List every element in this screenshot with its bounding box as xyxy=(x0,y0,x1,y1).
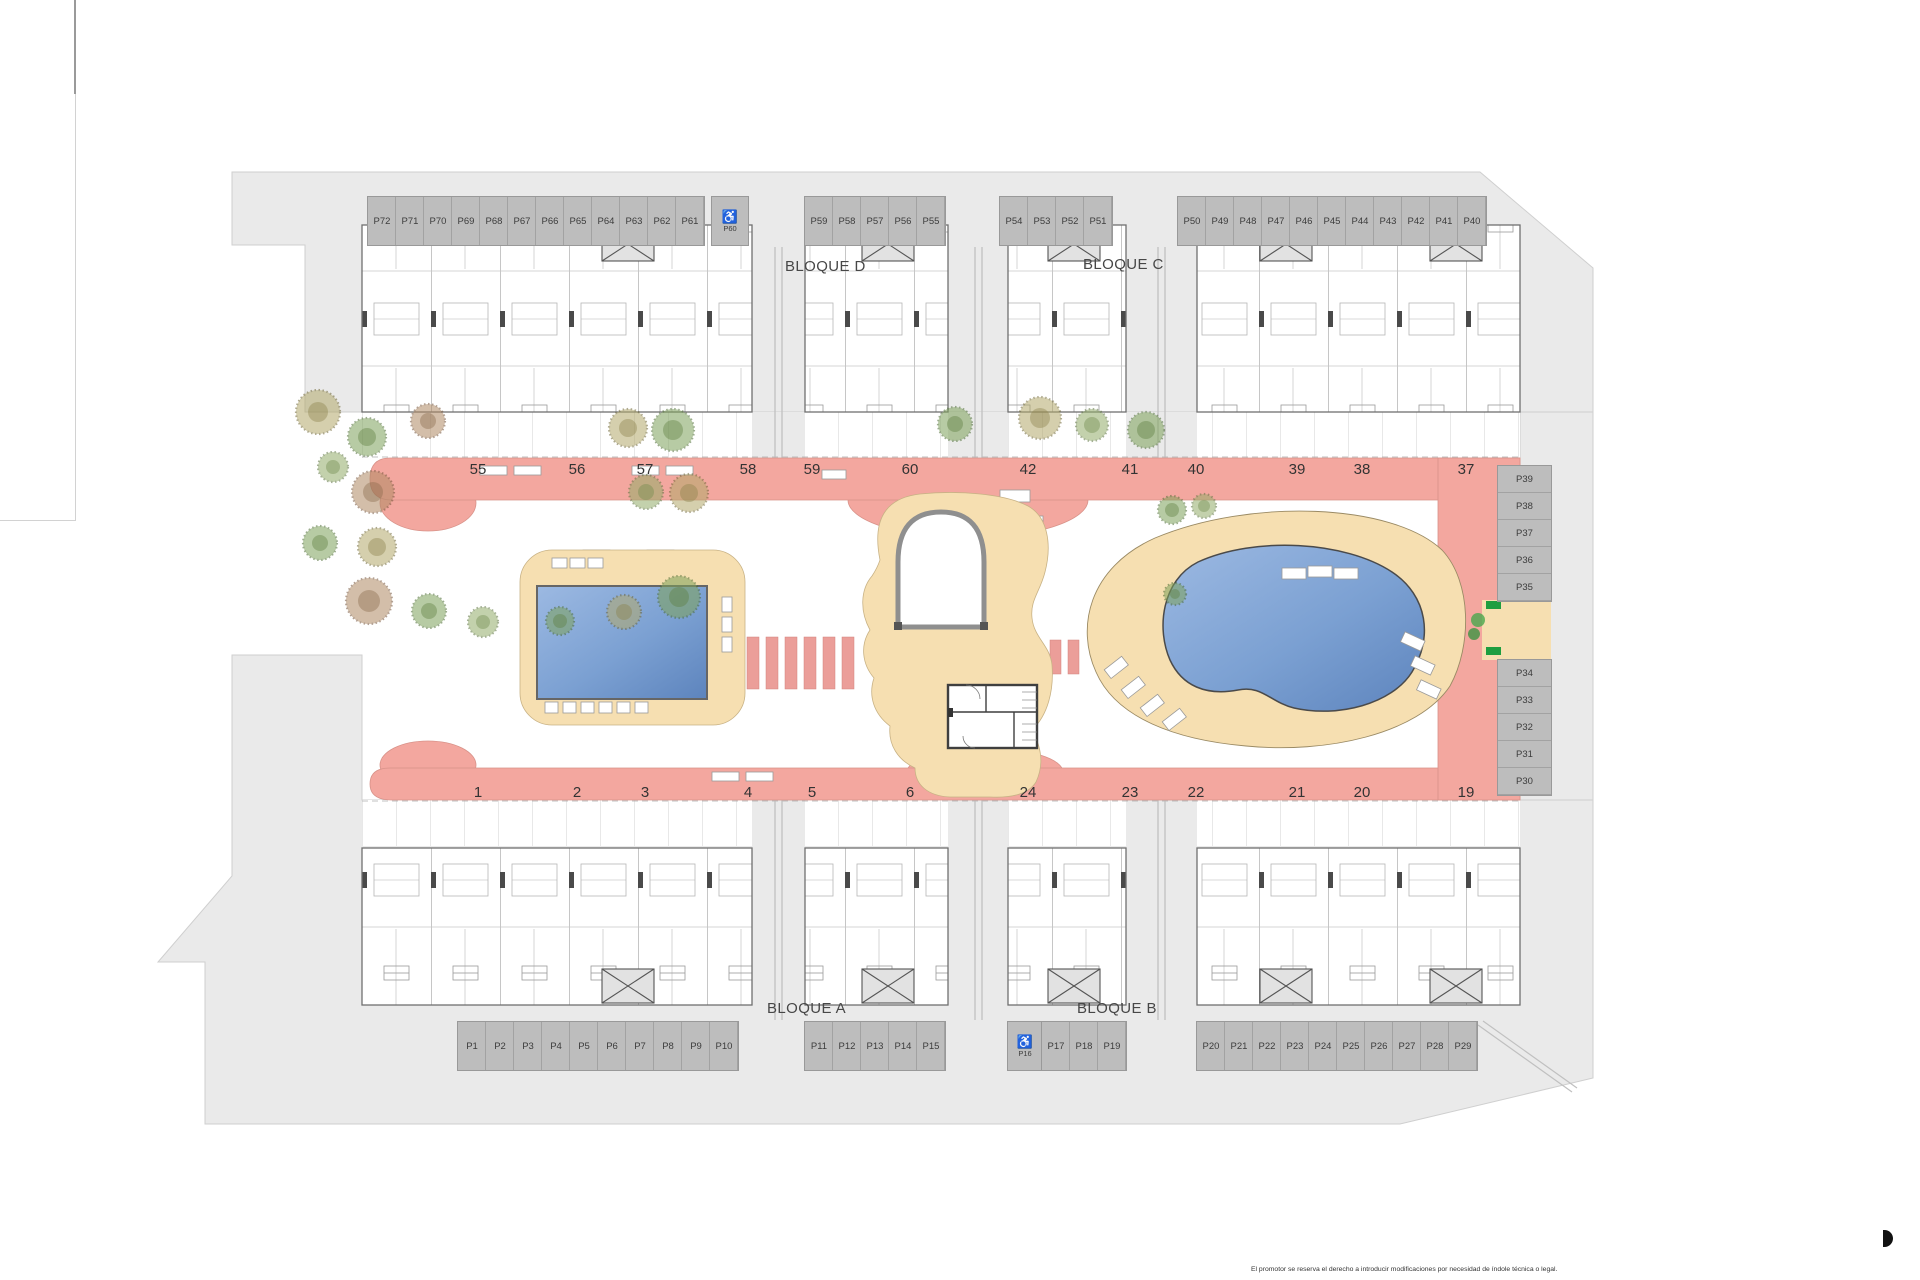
parking-stall: P14 xyxy=(889,1022,917,1070)
unit-number: 24 xyxy=(1020,784,1037,801)
wheelchair-icon: ♿ xyxy=(722,210,738,223)
parking-stall: P50 xyxy=(1178,197,1206,245)
parking-row-bottom-c: P17P18P19 xyxy=(1042,1022,1126,1070)
unit-number: 39 xyxy=(1289,461,1306,478)
parking-stall: P40 xyxy=(1458,197,1486,245)
pool-house xyxy=(948,685,1037,748)
parking-stall: P36 xyxy=(1498,547,1551,574)
parking-stall: P3 xyxy=(514,1022,542,1070)
parking-stall-accessible: ♿ P16 xyxy=(1008,1022,1042,1070)
central-amenity xyxy=(863,493,1053,798)
site-plan-canvas: P72P71P70P69P68P67P66P65P64P63P62P61 ♿ P… xyxy=(0,0,1920,1280)
parking-row-bottom-a: P1P2P3P4P5P6P7P8P9P10 xyxy=(458,1022,738,1070)
parking-stall: P47 xyxy=(1262,197,1290,245)
parking-stall: P23 xyxy=(1281,1022,1309,1070)
exit-sign-icon xyxy=(1486,601,1501,609)
unit-number: 23 xyxy=(1122,784,1139,801)
parking-stall: P48 xyxy=(1234,197,1262,245)
unit-number: 37 xyxy=(1458,461,1475,478)
parking-stall: P1 xyxy=(458,1022,486,1070)
parking-stall: P24 xyxy=(1309,1022,1337,1070)
parking-stall: P67 xyxy=(508,197,536,245)
parking-stall: P26 xyxy=(1365,1022,1393,1070)
parking-stall: P20 xyxy=(1197,1022,1225,1070)
wheelchair-icon: ♿ xyxy=(1017,1035,1033,1048)
left-pool-deck xyxy=(520,550,745,725)
block-label-a: BLOQUE A xyxy=(767,1000,846,1017)
parking-stall: P28 xyxy=(1421,1022,1449,1070)
parking-stall: P64 xyxy=(592,197,620,245)
parking-column-right-upper: P39P38P37P36P35 xyxy=(1498,466,1551,601)
parking-stall: P41 xyxy=(1430,197,1458,245)
parking-stall: P65 xyxy=(564,197,592,245)
parking-stall: P32 xyxy=(1498,714,1551,741)
parking-stall: P69 xyxy=(452,197,480,245)
kidney-pool-deck xyxy=(1087,511,1465,748)
block-label-d: BLOQUE D xyxy=(785,258,866,275)
parking-stall-accessible: ♿ P60 xyxy=(712,197,748,245)
parking-stall: P29 xyxy=(1449,1022,1477,1070)
unit-number: 20 xyxy=(1354,784,1371,801)
parking-stall: P31 xyxy=(1498,741,1551,768)
unit-number: 40 xyxy=(1188,461,1205,478)
parking-stall: P25 xyxy=(1337,1022,1365,1070)
parking-stall: P44 xyxy=(1346,197,1374,245)
parking-stall: P12 xyxy=(833,1022,861,1070)
parking-stall: P49 xyxy=(1206,197,1234,245)
parking-stall: P68 xyxy=(480,197,508,245)
parking-stall: P11 xyxy=(805,1022,833,1070)
parking-stall: P61 xyxy=(676,197,704,245)
unit-number: 19 xyxy=(1458,784,1475,801)
unit-numbers-top-right: 424140393837 xyxy=(0,461,1920,479)
disclaimer-text: El promotor se reserva el derecho a intr… xyxy=(1251,1266,1571,1273)
parking-stall: P42 xyxy=(1402,197,1430,245)
parking-stall: P4 xyxy=(542,1022,570,1070)
parking-stall: P21 xyxy=(1225,1022,1253,1070)
parking-stall: P18 xyxy=(1070,1022,1098,1070)
parking-stall: P9 xyxy=(682,1022,710,1070)
parking-stall: P35 xyxy=(1498,574,1551,601)
unit-number: 38 xyxy=(1354,461,1371,478)
parking-stall: P66 xyxy=(536,197,564,245)
parking-stall: P53 xyxy=(1028,197,1056,245)
parking-stall: P72 xyxy=(368,197,396,245)
block-label-b: BLOQUE B xyxy=(1077,1000,1157,1017)
unit-number: 42 xyxy=(1020,461,1037,478)
parking-row-bottom-d: P20P21P22P23P24P25P26P27P28P29 xyxy=(1197,1022,1477,1070)
parking-stall: P57 xyxy=(861,197,889,245)
parking-column-right-lower: P34P33P32P31P30 xyxy=(1498,660,1551,795)
parking-stall: P13 xyxy=(861,1022,889,1070)
parking-stall: P59 xyxy=(805,197,833,245)
parking-stall: P54 xyxy=(1000,197,1028,245)
parking-row-bottom-b: P11P12P13P14P15 xyxy=(805,1022,945,1070)
parking-stall: P37 xyxy=(1498,520,1551,547)
parking-stall: P63 xyxy=(620,197,648,245)
unit-number: 41 xyxy=(1122,461,1139,478)
site-plan-drawing xyxy=(0,0,1920,1280)
parking-row-top-mid-b: P54P53P52P51 xyxy=(1000,197,1112,245)
block-label-c: BLOQUE C xyxy=(1083,256,1164,273)
parking-stall: P45 xyxy=(1318,197,1346,245)
parking-stall: P46 xyxy=(1290,197,1318,245)
parking-stall-label: P16 xyxy=(1018,1049,1031,1058)
parking-stall: P71 xyxy=(396,197,424,245)
unit-number: 22 xyxy=(1188,784,1205,801)
parking-stall: P62 xyxy=(648,197,676,245)
unit-numbers-bottom-right: 242322212019 xyxy=(0,784,1920,802)
exit-sign-icon xyxy=(1486,647,1501,655)
parking-stall: P5 xyxy=(570,1022,598,1070)
parking-stall: P58 xyxy=(833,197,861,245)
parking-stall: P6 xyxy=(598,1022,626,1070)
parking-stall: P43 xyxy=(1374,197,1402,245)
parking-stall: P27 xyxy=(1393,1022,1421,1070)
parking-row-top-left: P72P71P70P69P68P67P66P65P64P63P62P61 xyxy=(368,197,704,245)
parking-row-top-right: P50P49P48P47P46P45P44P43P42P41P40 xyxy=(1178,197,1486,245)
parking-stall: P34 xyxy=(1498,660,1551,687)
parking-stall: P10 xyxy=(710,1022,738,1070)
parking-stall: P55 xyxy=(917,197,945,245)
parking-stall: P33 xyxy=(1498,687,1551,714)
parking-stall: P7 xyxy=(626,1022,654,1070)
parking-stall: P17 xyxy=(1042,1022,1070,1070)
parking-stall: P19 xyxy=(1098,1022,1126,1070)
parking-stall: P22 xyxy=(1253,1022,1281,1070)
unit-number: 21 xyxy=(1289,784,1306,801)
parking-stall: P15 xyxy=(917,1022,945,1070)
arched-court xyxy=(898,512,984,627)
parking-stall: P2 xyxy=(486,1022,514,1070)
parking-stall-label: P60 xyxy=(723,224,736,233)
parking-stall: P70 xyxy=(424,197,452,245)
parking-row-top-mid-a: P59P58P57P56P55 xyxy=(805,197,945,245)
parking-stall: P56 xyxy=(889,197,917,245)
parking-stall: P38 xyxy=(1498,493,1551,520)
parking-stall: P51 xyxy=(1084,197,1112,245)
parking-stall: P52 xyxy=(1056,197,1084,245)
parking-stall: P8 xyxy=(654,1022,682,1070)
